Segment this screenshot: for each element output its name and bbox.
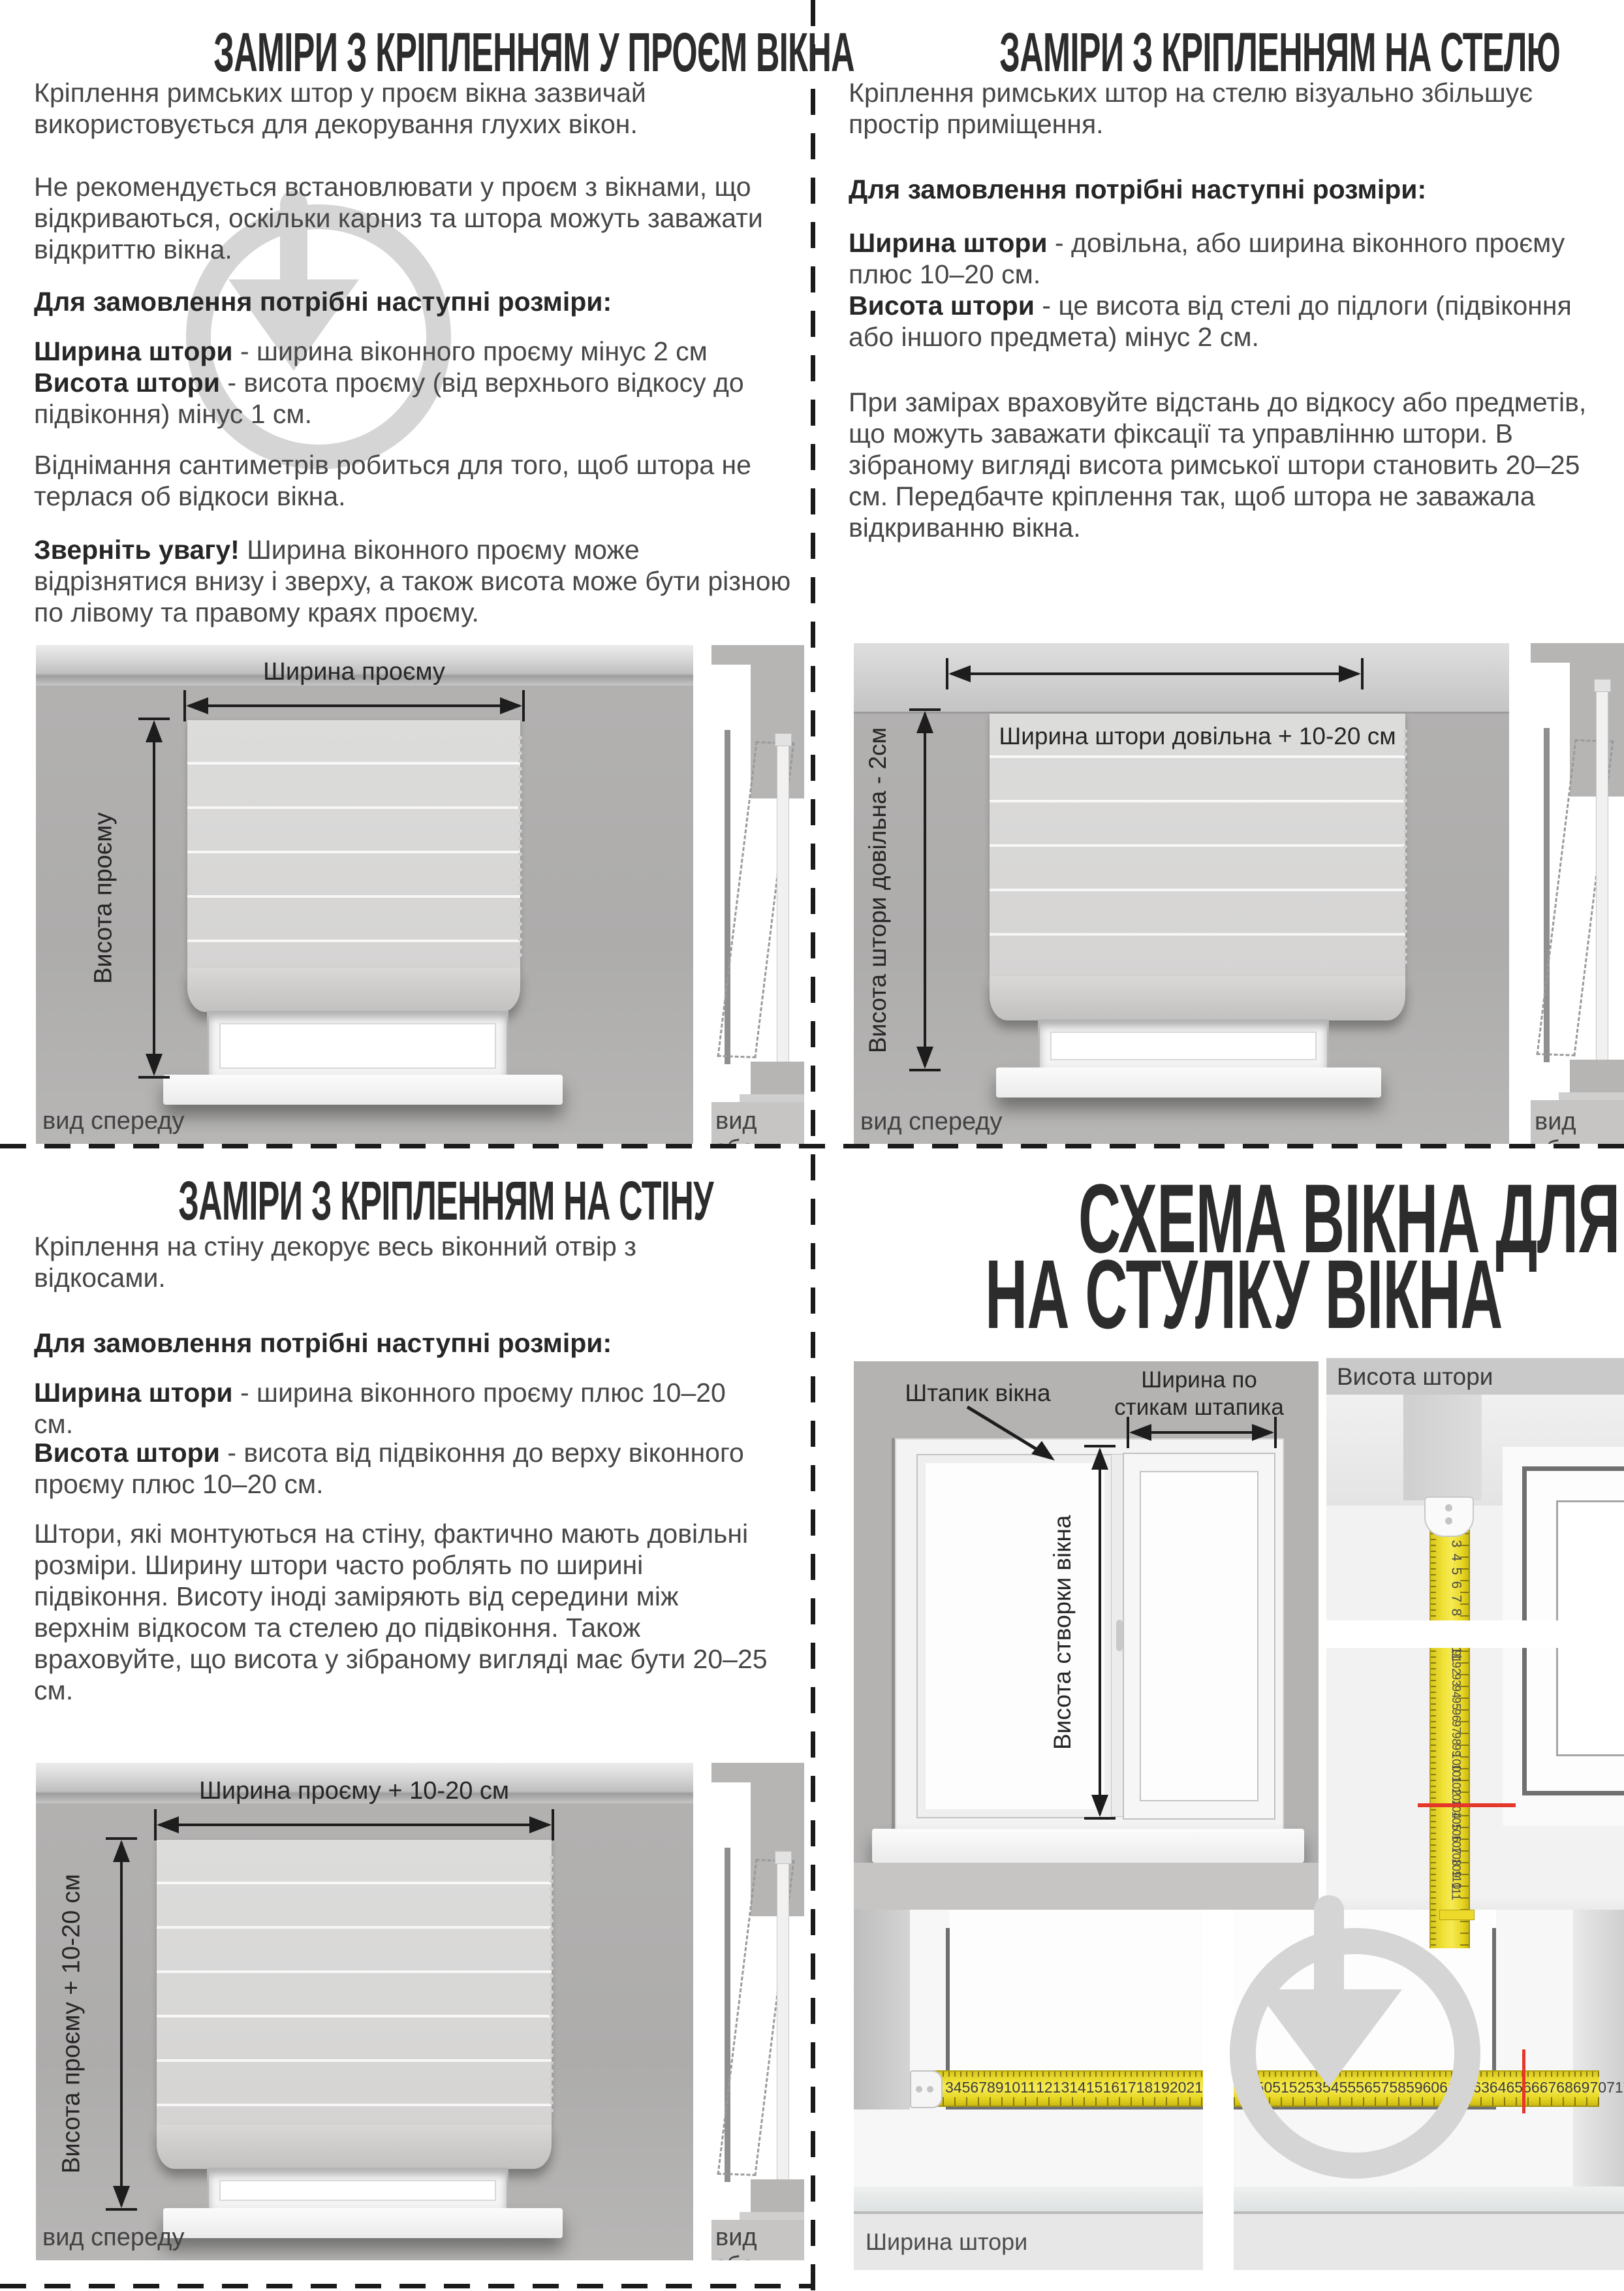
width-dim-arrow — [948, 665, 1361, 682]
section-title-text: ЗАМІРИ З КРІПЛЕННЯМ У ПРОЄМ ВІКНА — [213, 25, 854, 80]
red-mark-track — [1418, 1651, 1516, 1888]
paragraph-text: При замірах враховуйте відстань до відко… — [849, 387, 1586, 543]
paragraph-text: Кріплення римських штор у проєм вікна за… — [34, 78, 646, 139]
tape-number: 15 — [1086, 2080, 1103, 2095]
tape-number: 4 — [954, 2080, 962, 2095]
windowsill — [872, 1829, 1304, 1863]
size-item-height: Висота штори - висота від підвіконня до … — [34, 1437, 765, 1500]
bead-label: Штапик вікна — [880, 1380, 1076, 1407]
section-mount-on-ceiling: ЗАМІРИ З КРІПЛЕННЯМ НА СТЕЛЮ Кріплення р… — [813, 0, 1624, 1144]
width-dim-label: Ширина проєму — [186, 658, 522, 686]
tape-number: 4 — [1450, 1554, 1463, 1562]
roman-blind — [187, 720, 520, 970]
paragraph: При замірах враховуйте відстань до відко… — [849, 387, 1599, 543]
sash-bottom — [854, 2109, 1203, 2187]
tape-number: 3 — [1450, 1540, 1463, 1548]
size-item-width: Ширина штори - ширина віконного проєму м… — [34, 336, 778, 367]
width-dim-arrow — [157, 1816, 552, 1833]
sill-band — [854, 2187, 1203, 2214]
tape-number: 3 — [945, 2080, 954, 2095]
size-term: Ширина штори — [849, 228, 1048, 258]
order-heading: Для замовлення потрібні наступні розміри… — [849, 174, 1586, 205]
height-red-mark — [1418, 1803, 1516, 1807]
sash-height-label: Висота створки вікна — [1043, 1459, 1082, 1805]
windowsill — [163, 2208, 563, 2238]
tape-end-hook — [1424, 1496, 1474, 1537]
tape-number: 71 — [1606, 2080, 1623, 2095]
section-title: ЗАМІРИ З КРІПЛЕННЯМ НА СТЕЛЮ — [813, 25, 1624, 80]
red-mark-track — [1239, 2049, 1595, 2113]
panel-header-label: Висота штори — [1337, 1363, 1493, 1391]
ceiling-section — [1531, 643, 1624, 663]
front-view-illustration: Ширина проєму + 10-20 см Висота проєму +… — [36, 1763, 693, 2260]
blind-bottom-fold — [990, 976, 1405, 1020]
scheme-title-text: НА СТУЛКУ ВІКНА — [985, 1245, 1503, 1343]
section-title: ЗАМІРИ З КРІПЛЕННЯМ У ПРОЄМ ВІКНА — [0, 25, 813, 80]
window-scheme-illustration: Штапик вікна Ширина по стикам штапика Ви… — [854, 1361, 1319, 1910]
sash-height-arrow — [1091, 1447, 1108, 1817]
height-dim-arrow — [146, 720, 163, 1076]
tape-number: 5 — [1450, 1568, 1463, 1575]
tape-break — [1326, 1620, 1624, 1648]
size-item-height: Висота штори - висота проєму (від верхнь… — [34, 367, 758, 430]
paragraph-text: Віднімання сантиметрів робиться для того… — [34, 450, 751, 511]
height-dim-label: Висота штори довільна - 2см — [859, 711, 897, 1069]
instruction-sheet: ЗАМІРИ З КРІПЛЕННЯМ У ПРОЄМ ВІКНА Кріпле… — [0, 0, 1624, 2291]
section-mount-in-opening: ЗАМІРИ З КРІПЛЕННЯМ У ПРОЄМ ВІКНА Кріпле… — [0, 0, 813, 1144]
blind-side-profile — [777, 736, 789, 1068]
blind-bottom-fold — [157, 2125, 552, 2169]
width-measure-panel-left: 3456789101112131415161718192021222324 Ши… — [854, 1910, 1203, 2270]
paragraph: Віднімання сантиметрів робиться для того… — [34, 449, 765, 512]
tape-number: 8 — [987, 2080, 995, 2095]
blind-side-profile — [777, 1854, 789, 2186]
size-term: Ширина штори — [34, 1378, 233, 1408]
section-title-text: ЗАМІРИ З КРІПЛЕННЯМ НА СТІНУ — [178, 1173, 713, 1228]
tape-number: 6 — [1450, 1581, 1463, 1589]
tape-number: 7 — [1450, 1595, 1463, 1603]
tape-number: 11 — [1020, 2080, 1036, 2095]
blind-chain — [550, 1856, 554, 2113]
order-heading: Для замовлення потрібні наступні розміри… — [34, 286, 778, 317]
window-under-blind — [1038, 1019, 1329, 1073]
height-measure-panel: Висота штори 34567891011 919293949596979… — [1326, 1358, 1624, 1998]
tape-number: 12 — [1036, 2080, 1053, 2095]
section-mount-on-wall: ЗАМІРИ З КРІПЛЕННЯМ НА СТІНУ Кріплення н… — [0, 1147, 813, 2291]
side-view-caption: вид збоку — [715, 2224, 804, 2260]
size-term: Висота штори — [34, 1438, 220, 1468]
tape-end-hook — [910, 2070, 943, 2108]
height-dim-label: Висота проєму — [84, 720, 123, 1076]
section-window-scheme: СХЕМА ВІКНА ДЛЯ ЗАМІРІВ НА СТУЛКУ ВІКНА … — [813, 1147, 1624, 2291]
note-term: Зверніть увагу! — [34, 535, 240, 565]
order-heading: Для замовлення потрібні наступні розміри… — [34, 1327, 772, 1359]
size-term: Висота штори — [849, 291, 1035, 321]
scheme-title-line2: НА СТУЛКУ ВІКНА — [813, 1245, 1624, 1343]
sill-band — [1234, 2187, 1624, 2214]
tape-number: 8 — [1450, 1609, 1463, 1617]
front-view-caption: вид спереду — [42, 1107, 184, 1135]
front-view-caption: вид спереду — [860, 1108, 1002, 1136]
blind-chain — [1403, 729, 1407, 964]
blind-side-profile — [1596, 682, 1608, 1066]
side-view-caption: вид збоку — [715, 1107, 804, 1144]
roman-blind — [990, 714, 1405, 977]
side-view-illustration: вид збоку — [711, 1763, 804, 2260]
note-paragraph: Зверніть увагу! Ширина віконного проєму … — [34, 534, 794, 628]
tape-number: 7 — [978, 2080, 987, 2095]
size-term: Висота штори — [34, 368, 220, 398]
tape-numbers: 3456789101112131415161718192021222324 — [945, 2070, 1200, 2104]
wall-band — [1234, 2214, 1624, 2270]
roman-blind — [157, 1840, 552, 2126]
paragraph: Кріплення римських штор у проєм вікна за… — [34, 77, 778, 140]
width-panel-caption: Ширина штори — [866, 2228, 1027, 2256]
section-title: ЗАМІРИ З КРІПЛЕННЯМ НА СТІНУ — [0, 1173, 813, 1228]
tape-number: 18 — [1136, 2080, 1153, 2095]
side-view-caption: вид збоку — [1535, 1108, 1624, 1144]
wall-below-sill — [854, 1863, 1319, 1910]
side-view-illustration: вид збоку — [1531, 643, 1624, 1144]
size-desc: - ширина віконного проєму мінус 2 см — [233, 336, 708, 366]
width-dim-label: Ширина проєму + 10-20 см — [157, 1777, 552, 1805]
tape-number: 20 — [1170, 2080, 1187, 2095]
tape-number: 6 — [970, 2080, 978, 2095]
blind-chain — [518, 736, 522, 957]
sash-glass-pane — [1140, 1471, 1258, 1801]
paragraph: Кріплення римських штор на стелю візуаль… — [849, 77, 1586, 140]
fixed-glass-pane — [916, 1454, 1114, 1818]
vertical-tape-stub — [1439, 1910, 1475, 1920]
joint-width-label: Ширина по стикам штапика — [1114, 1367, 1285, 1421]
width-dim-arrow — [186, 697, 522, 714]
paragraph: Кріплення на стіну декорує весь віконний… — [34, 1231, 752, 1293]
paragraph-text: Не рекомендується встановлювати у проєм … — [34, 172, 763, 264]
tape-number: 14 — [1069, 2080, 1086, 2095]
front-view-caption: вид спереду — [42, 2224, 184, 2252]
height-dim-label: Висота проєму + 10-20 см — [53, 1840, 91, 2208]
windowsill — [163, 1075, 563, 1105]
windowsill — [996, 1067, 1381, 1098]
window-handle — [1116, 1620, 1123, 1651]
size-item-width: Ширина штори - довільна, або ширина віко… — [849, 227, 1573, 290]
front-view-illustration: Ширина штори довільна + 10-20 см Висота … — [854, 643, 1509, 1144]
tape-number: 10 — [1004, 2080, 1021, 2095]
window-under-blind — [207, 2168, 508, 2213]
room-scene: 34567891011 9192939495969798991001011021… — [1326, 1395, 1624, 1998]
size-term: Ширина штори — [34, 336, 233, 366]
panel-header: Висота штори — [1326, 1358, 1624, 1395]
tape-number: 19 — [1153, 2080, 1170, 2095]
tape-number: 9 — [995, 2080, 1004, 2095]
tape-number: 5 — [962, 2080, 971, 2095]
ceiling-section — [711, 1763, 804, 1782]
window-under-blind — [207, 1011, 508, 1081]
blind-bottom-fold — [187, 968, 520, 1012]
front-view-illustration: Ширина проєму Висота проєму вид спереду — [36, 645, 693, 1144]
section-title-text: ЗАМІРИ З КРІПЛЕННЯМ НА СТЕЛЮ — [999, 25, 1560, 80]
paragraph-text: Штори, які монтуються на стіну, фактично… — [34, 1519, 768, 1705]
width-dim-label: Ширина штори довільна + 10-20 см — [990, 723, 1405, 750]
side-view-illustration: вид збоку — [711, 645, 804, 1144]
paragraph-text: Кріплення на стіну декорує весь віконний… — [34, 1231, 636, 1293]
watermark-handle — [1314, 1895, 1344, 1997]
paragraph-text: Кріплення римських штор на стелю візуаль… — [849, 78, 1533, 139]
ceiling-beam — [1403, 1395, 1482, 1500]
tape-number: 13 — [1053, 2080, 1070, 2095]
height-dim-arrow — [113, 1840, 130, 2208]
tape-number: 21 — [1186, 2080, 1203, 2095]
paragraph: Штори, які монтуються на стіну, фактично… — [34, 1518, 778, 1706]
size-item-height: Висота штори - це висота від стелі до пі… — [849, 290, 1580, 353]
tape-number: 17 — [1119, 2080, 1136, 2095]
width-red-mark — [1522, 2049, 1525, 2113]
joint-width-arrow — [1129, 1424, 1274, 1441]
height-dim-arrow — [916, 711, 933, 1069]
paragraph: Не рекомендується встановлювати у проєм … — [34, 171, 791, 265]
ceiling-section — [711, 645, 804, 665]
tape-number: 16 — [1102, 2080, 1119, 2095]
size-item-width: Ширина штори - ширина віконного проєму п… — [34, 1377, 739, 1440]
